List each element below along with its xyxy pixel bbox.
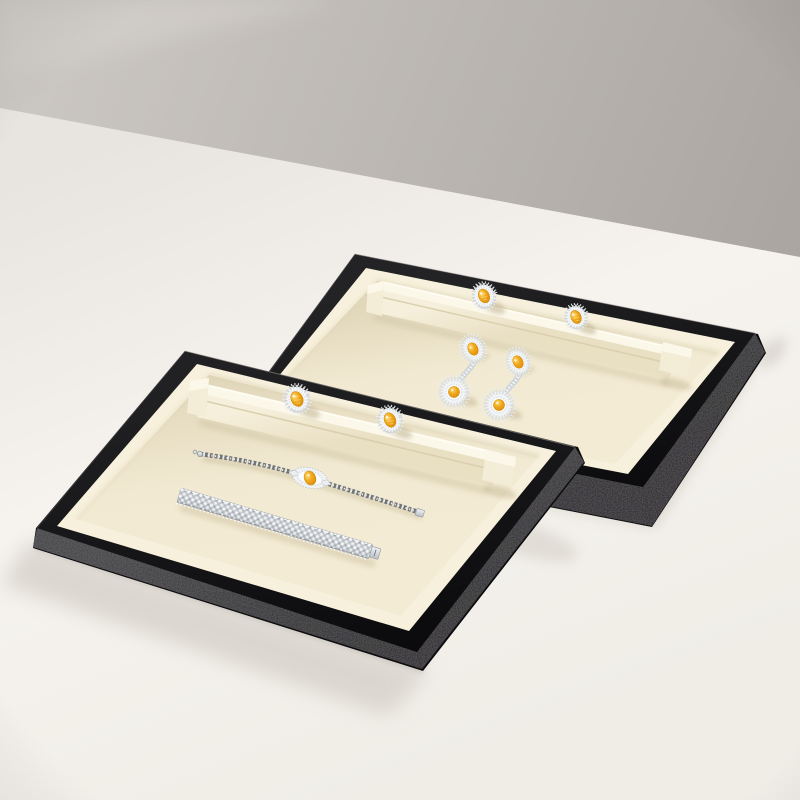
vignette-overlay [0, 0, 800, 800]
scene-photo [0, 0, 800, 800]
photo-stage [0, 0, 800, 800]
